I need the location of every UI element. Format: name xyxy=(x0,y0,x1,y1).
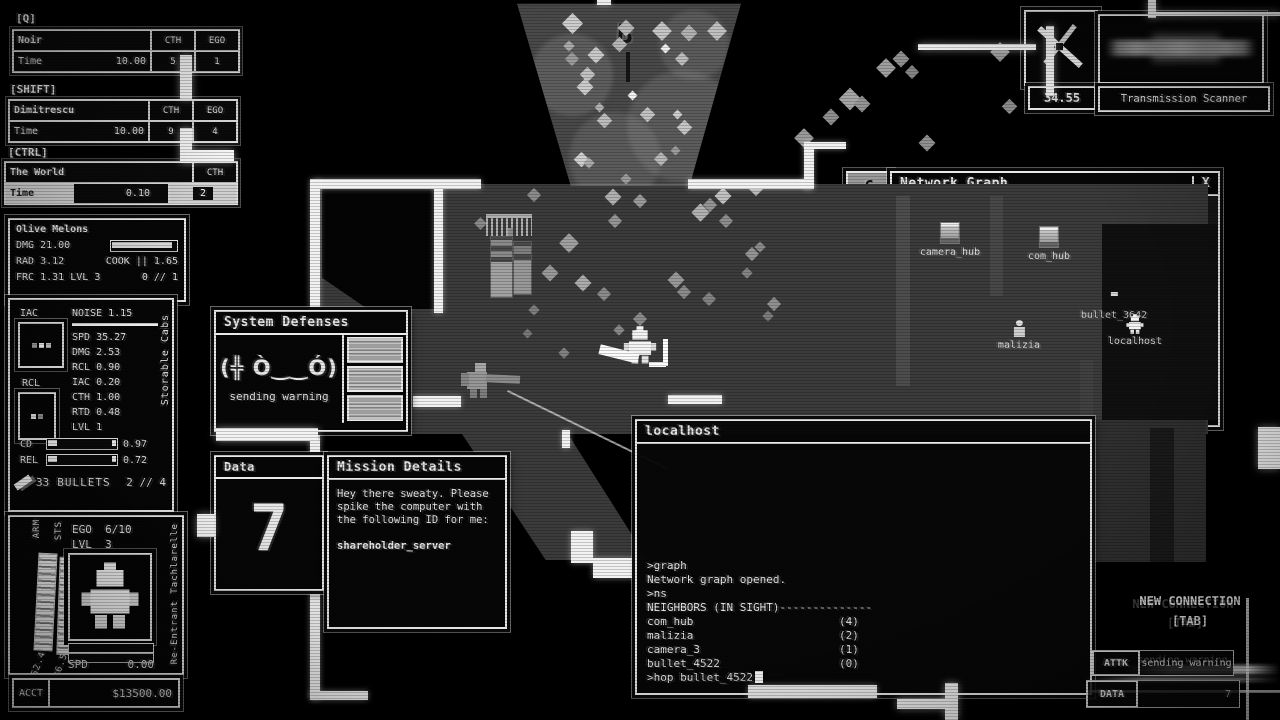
ego-value: 4 xyxy=(193,121,237,142)
enemy-gun xyxy=(486,374,520,384)
lvl-value: 3 xyxy=(94,272,100,283)
ego-value: 6/10 xyxy=(105,523,132,536)
neighbor-row: bullet_4522(0) xyxy=(647,657,1080,671)
particle-diamond xyxy=(559,233,579,253)
map-bleed-strip xyxy=(990,196,1003,296)
wall xyxy=(310,691,368,700)
defense-slots xyxy=(342,335,406,423)
storable-cabs-label: Storable Cabs xyxy=(160,314,171,405)
cone-glyph-stem xyxy=(626,52,630,82)
particle-diamond xyxy=(893,51,910,68)
item-slot-1[interactable] xyxy=(18,322,64,368)
graph-node-camera-hub[interactable]: camera_hub xyxy=(920,222,980,258)
defense-slot[interactable] xyxy=(347,395,403,421)
neighbor-row: malizia(2) xyxy=(647,629,1080,643)
noise-value: 1.15 xyxy=(108,308,132,319)
tab-key-hint[interactable]: [TAB] xyxy=(1100,614,1280,628)
defense-slot[interactable] xyxy=(347,337,403,363)
account-panel: ACCT $13500.00 xyxy=(12,678,180,708)
stat-row: RTD 0.48 xyxy=(72,407,120,418)
particle-diamond xyxy=(905,65,919,79)
item-pixel xyxy=(38,414,43,419)
particle-diamond xyxy=(767,297,781,311)
rel-value: 0.72 xyxy=(123,455,147,466)
bokeh-circle xyxy=(659,10,729,80)
text-cursor xyxy=(755,671,763,683)
bullets-mag: 2 // 4 xyxy=(126,476,166,489)
particle-diamond xyxy=(677,285,691,299)
player-melee-horizontal xyxy=(649,362,666,367)
ego-header: EGO xyxy=(195,30,239,51)
rel-row: REL 0.72 xyxy=(20,454,162,466)
enemy-body xyxy=(467,372,487,389)
new-connection-title: NEW CONNECTION xyxy=(1100,594,1280,608)
cd-bar-cap xyxy=(48,440,57,446)
particle-diamond xyxy=(823,109,840,126)
person-icon xyxy=(1013,320,1026,337)
weapon-panel: Olive Melons DMG 21.00 RAD 3.12 COOK || … xyxy=(8,218,186,302)
graph-node-com-hub[interactable]: com_hub xyxy=(1028,226,1070,262)
particle-diamond xyxy=(633,312,647,326)
terminal-line: >graph xyxy=(647,559,1080,573)
ability-name: The World xyxy=(5,162,193,183)
spd-row: SPD 0.00 xyxy=(68,658,154,671)
neighbor-row: com_hub(4) xyxy=(647,615,1080,629)
stats-panel: IAC RCL NOISE 1.15 SPD 35.27 DMG 2.53 RC… xyxy=(8,298,174,512)
cth-value: 2 xyxy=(193,187,213,200)
node-label: malizia xyxy=(998,340,1040,351)
node-label: camera_hub xyxy=(920,247,980,258)
cd-bar xyxy=(46,438,118,450)
stat-row: LVL 1 xyxy=(72,422,102,433)
circuit-line xyxy=(1148,0,1156,18)
data-value: 7 xyxy=(1225,689,1239,700)
item-pixel xyxy=(46,343,51,348)
door-marker xyxy=(571,531,593,563)
stat-row: SPD 35.27 xyxy=(72,332,126,343)
player-panel: ARM STS 62.4 36.5 EGO 6/10 LVL 3 Re-Entr… xyxy=(8,515,184,675)
item-slot-2[interactable] xyxy=(18,392,56,440)
data-title: Data xyxy=(216,457,322,479)
server-cabinet xyxy=(490,236,513,298)
lvl-row: LVL 3 xyxy=(72,538,112,551)
time-value: 10.00 xyxy=(114,126,144,137)
circuit-line xyxy=(918,44,1036,50)
attk-label: ATTK xyxy=(1092,650,1140,676)
wall xyxy=(804,146,814,189)
circuit-line xyxy=(897,699,947,709)
panel-underline xyxy=(216,428,318,441)
ability-slot-q: Noir CTH EGO Time10.00 5 1 xyxy=(12,29,240,73)
cd-label: CD xyxy=(20,439,46,450)
stat-row: IAC 0.20 xyxy=(72,377,120,388)
mission-target: shareholder_server xyxy=(337,540,497,553)
attk-status: sending warning xyxy=(1141,658,1231,669)
particle-diamond xyxy=(719,214,733,228)
door-marker xyxy=(562,430,570,448)
lvl-label: LVL xyxy=(70,272,88,283)
portrait-frame xyxy=(68,553,152,641)
map-bleed-strip xyxy=(896,196,910,386)
ego-label: EGO xyxy=(72,523,92,536)
particle-diamond xyxy=(575,275,592,292)
mission-body: Hey there sweaty. Please spike the compu… xyxy=(337,488,497,527)
player-character xyxy=(623,326,663,372)
noise-underline xyxy=(72,323,158,326)
hub-icon xyxy=(1039,226,1059,248)
ammo-count: 0 // 1 xyxy=(142,270,178,286)
particle-diamond xyxy=(527,188,541,202)
wall xyxy=(668,395,722,404)
particle-diamond xyxy=(528,304,539,315)
ability-cooldown-bar: Time 0.10 xyxy=(5,183,169,204)
cd-bar-cap xyxy=(112,440,116,446)
item-pixel xyxy=(32,343,37,348)
time-label: Time xyxy=(14,126,38,137)
connector xyxy=(180,55,192,99)
connector xyxy=(197,514,214,537)
time-value: 0.10 xyxy=(126,188,164,199)
stat-row: DMG 2.53 xyxy=(72,347,120,358)
graph-node-malizia[interactable]: malizia xyxy=(998,320,1040,351)
attack-badge: ATTK sending warning xyxy=(1092,650,1234,676)
bullet-icon xyxy=(14,474,33,490)
spd-label: SPD xyxy=(68,658,88,671)
reentrant-label: Re-Entrant Tachlarelle xyxy=(170,523,180,664)
node-label: com_hub xyxy=(1028,251,1070,262)
rel-bar-cap xyxy=(112,456,116,462)
time-label: Time xyxy=(10,188,34,199)
map-bleed-strip xyxy=(1080,360,1093,420)
wall xyxy=(688,179,812,189)
bullet-icon xyxy=(1110,292,1117,296)
item-pixel xyxy=(31,414,36,419)
game-screen: { "hud": { "abilities": [ {"key":"[Q]","… xyxy=(0,0,1280,720)
data-panel: Data 7 xyxy=(214,455,324,591)
bullets-count: 33 xyxy=(36,476,49,489)
knight-icon xyxy=(1108,314,1162,336)
stat-row: RCL 0.90 xyxy=(72,362,120,373)
cd-value: 0.97 xyxy=(123,439,147,450)
mission-title: Mission Details xyxy=(329,457,505,480)
lvl-value: 3 xyxy=(105,538,112,551)
particle-diamond xyxy=(762,310,773,321)
lvl-label: LVL xyxy=(72,538,92,551)
particle-diamond xyxy=(741,267,752,278)
circuit-line xyxy=(1156,12,1280,16)
ability-name: Dimitrescu xyxy=(9,100,149,121)
frc-label: FRC xyxy=(16,272,34,283)
system-defenses-title: System Defenses xyxy=(216,312,406,335)
weapon-name: Olive Melons xyxy=(16,222,178,238)
enemy-pack xyxy=(461,373,469,386)
ability-slot-ctrl: The World CTH Time 0.10 2 xyxy=(4,161,238,205)
door-marker xyxy=(593,558,637,578)
item-pixel xyxy=(39,343,44,348)
arm-bar xyxy=(33,553,57,652)
ability-keybind: [SHIFT] xyxy=(10,83,56,96)
noise-label: NOISE xyxy=(72,308,102,319)
defense-status: sending warning xyxy=(229,390,328,403)
particle-diamond xyxy=(605,189,622,206)
rel-label: REL xyxy=(20,455,46,466)
cth-cell: 2 xyxy=(169,183,237,204)
bullets-label: BULLETS xyxy=(57,476,110,489)
rel-bar xyxy=(46,454,118,466)
terminal-prompt[interactable]: >hop bullet_4522 xyxy=(647,671,1080,685)
data-count: 7 xyxy=(216,479,322,579)
particle-diamond xyxy=(523,329,533,339)
rel-bar-cap xyxy=(48,456,57,462)
player-portrait xyxy=(80,563,140,632)
ego-header: EGO xyxy=(193,100,237,121)
time-label: Time xyxy=(18,56,42,67)
acct-value: $13500.00 xyxy=(50,680,178,706)
circuit-line xyxy=(1258,427,1280,469)
data-label: DATA xyxy=(1086,680,1138,708)
terminal-title: localhost xyxy=(637,421,1090,444)
terminal-line: Network graph opened. xyxy=(647,573,1080,587)
particle-diamond xyxy=(474,217,487,230)
slot2-label: RCL xyxy=(22,378,40,389)
wall xyxy=(434,185,443,313)
circuit-line xyxy=(1046,26,1054,96)
ability-keybind: [Q] xyxy=(16,12,36,25)
connector xyxy=(190,150,234,162)
arm-value: 62.4 xyxy=(30,650,48,678)
cook-label: COOK || xyxy=(106,256,148,267)
cth-header: CTH xyxy=(193,162,237,183)
terminal-body[interactable]: >graph Network graph opened. >ns NEIGHBO… xyxy=(647,559,1080,685)
particle-diamond xyxy=(919,135,936,152)
server-cabinet xyxy=(513,241,532,295)
acct-label: ACCT xyxy=(14,680,50,706)
node-label: localhost xyxy=(1108,336,1162,347)
ability-keybind: [CTRL] xyxy=(8,146,48,159)
neighbor-row: camera_3(1) xyxy=(647,643,1080,657)
wall xyxy=(413,396,461,407)
cook-value: 1.65 xyxy=(154,256,178,267)
particle-diamond xyxy=(608,214,622,228)
cd-row: CD 0.97 xyxy=(20,438,162,450)
data-badge: DATA 7 xyxy=(1086,680,1240,708)
dmg-value: 21.00 xyxy=(40,240,70,251)
dmg-label: DMG xyxy=(16,240,34,251)
spd-value: 0.00 xyxy=(128,658,155,671)
terminal-line: >ns xyxy=(647,587,1080,601)
wall xyxy=(318,179,481,189)
stat-row: CTH 1.00 xyxy=(72,392,120,403)
particle-diamond xyxy=(1002,99,1018,115)
enemy-leg xyxy=(470,389,477,398)
particle-diamond xyxy=(633,194,647,208)
time-value: 10.00 xyxy=(116,56,146,67)
mission-panel: Mission Details Hey there sweaty. Please… xyxy=(327,455,507,629)
sts-label: STS xyxy=(54,521,64,540)
new-connection-hint: NEW CONNECTION [TAB] xyxy=(1100,594,1280,628)
hub-icon xyxy=(940,222,960,244)
ego-row: EGO 6/10 xyxy=(72,523,132,536)
particle-diamond xyxy=(702,292,716,306)
ability-slot-shift: Dimitrescu CTH EGO Time10.00 9 4 xyxy=(8,99,238,143)
defense-slot[interactable] xyxy=(347,366,403,392)
wall xyxy=(804,142,846,149)
particle-diamond xyxy=(597,287,611,301)
slot1-label: IAC xyxy=(20,308,38,319)
ego-value: 1 xyxy=(195,51,239,72)
cth-header: CTH xyxy=(151,30,195,51)
noise-row: NOISE 1.15 xyxy=(72,308,132,319)
heat-bar-fill xyxy=(112,242,172,248)
particle-diamond xyxy=(558,347,569,358)
particle-diamond xyxy=(542,265,559,282)
ability-name: Noir xyxy=(13,30,151,51)
bullets-row: 33 BULLETS 2 // 4 xyxy=(14,476,166,489)
arm-label: ARM xyxy=(32,519,42,538)
rad-value: 3.12 xyxy=(40,256,64,267)
particle-diamond xyxy=(715,188,732,205)
enemy-leg xyxy=(480,389,487,398)
defense-emote: (╬ Ò‿‿Ó) xyxy=(220,356,338,380)
cth-header: CTH xyxy=(149,100,193,121)
terminal-window: localhost >graph Network graph opened. >… xyxy=(635,419,1092,695)
wall xyxy=(597,0,611,5)
wall-over-terminal xyxy=(748,685,877,698)
graph-node-localhost[interactable]: localhost xyxy=(1108,314,1162,347)
frc-value: 1.31 xyxy=(40,272,64,283)
portrait-sub-bar xyxy=(68,643,154,653)
particle-diamond xyxy=(876,58,896,78)
terminal-line: NEIGHBORS (IN SIGHT)-------------- xyxy=(647,601,1080,615)
rad-label: RAD xyxy=(16,256,34,267)
system-defenses-panel: System Defenses (╬ Ò‿‿Ó) sending warning xyxy=(214,310,408,432)
heat-bar xyxy=(110,240,178,252)
